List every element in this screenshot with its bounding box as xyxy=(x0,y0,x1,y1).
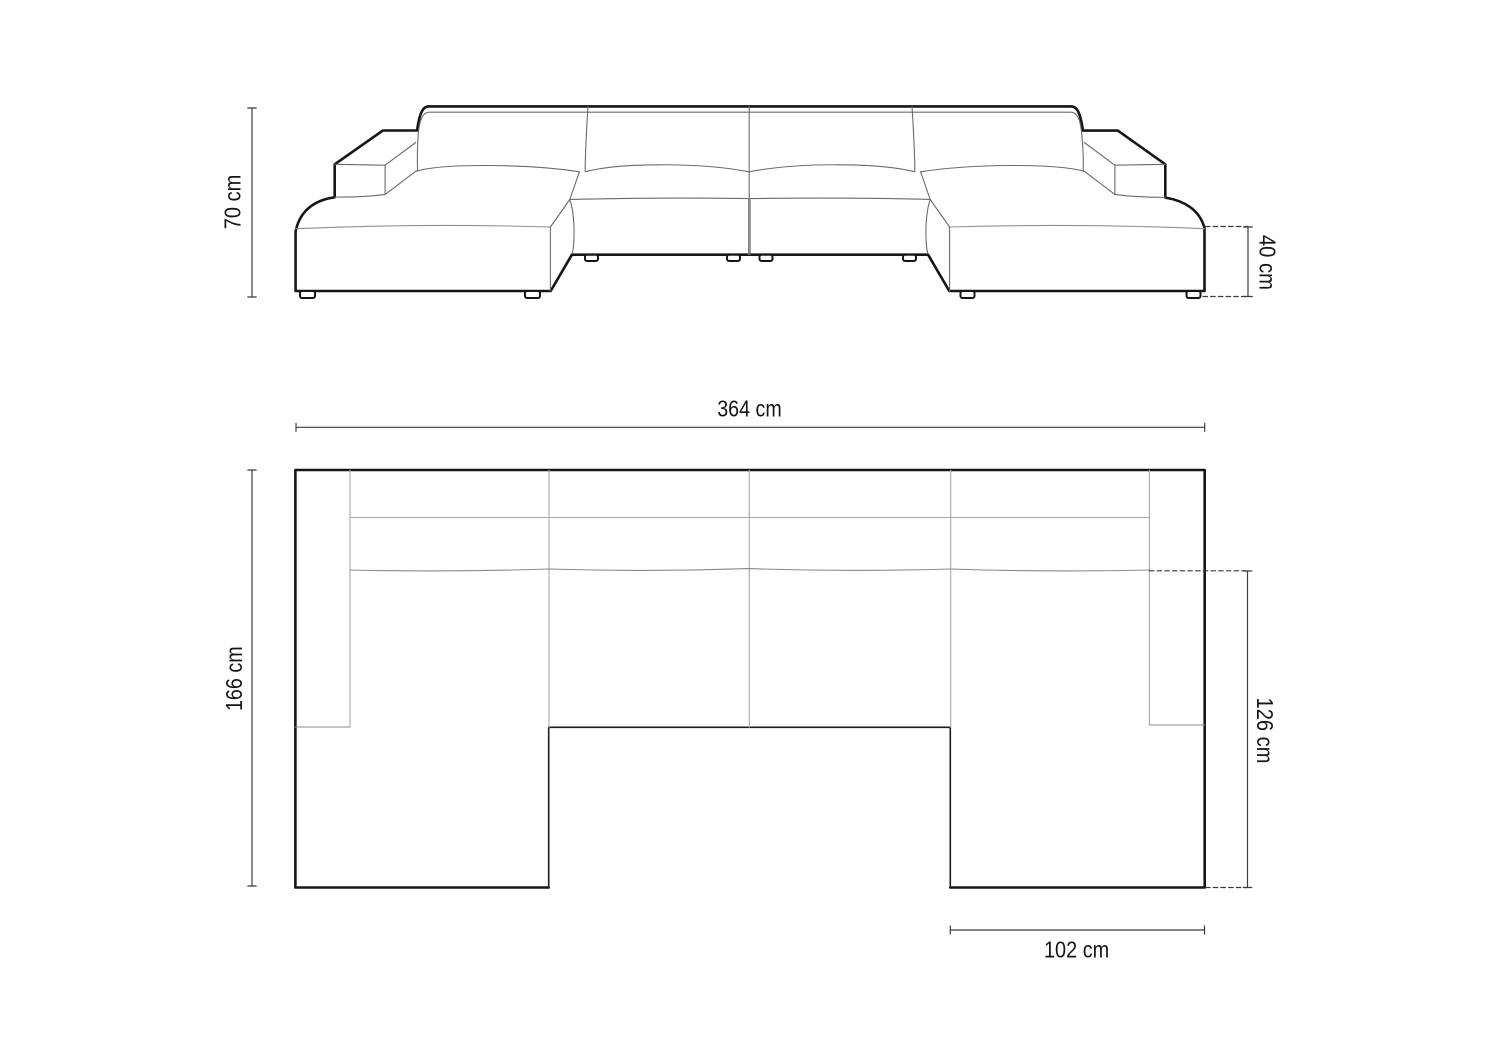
svg-text:126 cm: 126 cm xyxy=(1252,698,1278,764)
svg-text:166 cm: 166 cm xyxy=(221,646,247,711)
svg-text:102 cm: 102 cm xyxy=(1044,937,1109,963)
svg-text:70 cm: 70 cm xyxy=(220,175,246,230)
svg-text:364 cm: 364 cm xyxy=(717,395,782,421)
svg-text:40 cm: 40 cm xyxy=(1255,235,1281,290)
